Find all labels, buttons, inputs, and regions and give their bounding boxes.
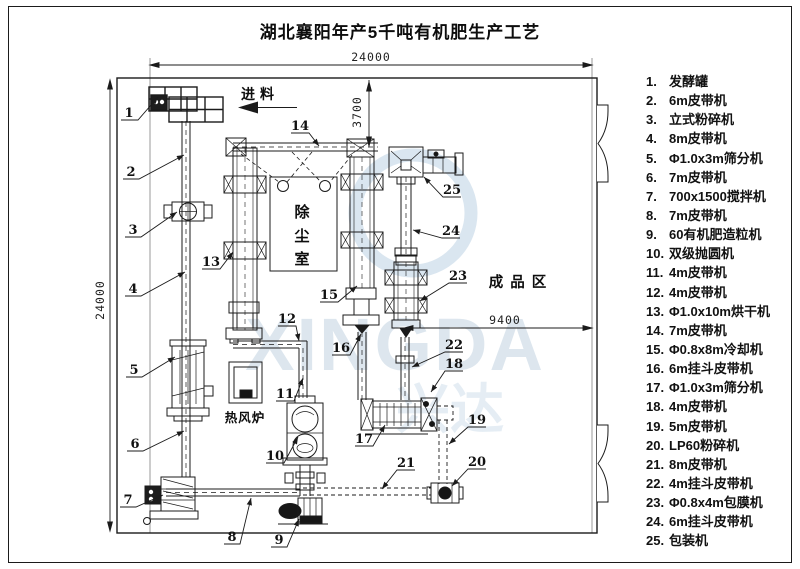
legend-item-number: 4. xyxy=(646,131,669,146)
legend-item-label: 4m皮带机 xyxy=(669,282,727,301)
feed-arrow: 进料 xyxy=(238,86,297,114)
legend-item-label: 6m皮带机 xyxy=(669,90,727,109)
legend-item-number: 19. xyxy=(646,419,669,434)
legend-item-number: 2. xyxy=(646,93,669,108)
legend-item: 10.双级抛圆机 xyxy=(646,243,788,262)
dust-room: 除 尘 室 xyxy=(241,152,352,271)
callout-24: 24 xyxy=(442,224,460,239)
legend-item-label: Φ1.0x3m筛分机 xyxy=(669,377,763,396)
dust-room-char-1: 除 xyxy=(294,203,310,221)
legend-item-number: 11. xyxy=(646,265,669,280)
callout-13: 13 xyxy=(202,255,220,270)
legend-item: 12.4m皮带机 xyxy=(646,282,788,301)
legend-item: 7.700x1500搅拌机 xyxy=(646,186,788,205)
legend-item-label: 双级抛圆机 xyxy=(669,243,734,262)
legend-item-label: 发酵罐 xyxy=(669,71,708,90)
callout-23: 23 xyxy=(449,269,467,284)
rounding-machine-10 xyxy=(283,396,327,496)
belt-left-vertical xyxy=(182,121,190,477)
feed-label: 进料 xyxy=(241,86,279,102)
dim-top: 24000 xyxy=(351,50,391,64)
callout-19: 19 xyxy=(468,413,486,428)
legend-item-label: 4m皮带机 xyxy=(669,262,727,281)
belt-24 xyxy=(395,177,417,256)
legend-item: 24.6m挂斗皮带机 xyxy=(646,511,788,530)
legend-item-number: 22. xyxy=(646,476,669,491)
callout-9: 9 xyxy=(274,533,283,548)
legend-item-label: 包装机 xyxy=(669,530,708,549)
legend-item: 16.6m挂斗皮带机 xyxy=(646,358,788,377)
legend-list: 1.发酵罐2.6m皮带机3.立式粉碎机4.8m皮带机5.Φ1.0x3m筛分机6.… xyxy=(646,71,788,550)
furnace-label: 热风炉 xyxy=(225,410,266,425)
callout-14: 14 xyxy=(291,119,309,134)
legend-item-label: 7m皮带机 xyxy=(669,320,727,339)
belt-14 xyxy=(226,138,378,156)
legend-item: 4.8m皮带机 xyxy=(646,128,788,147)
legend-item-label: 8m皮带机 xyxy=(669,128,727,147)
callout-5: 5 xyxy=(129,363,138,378)
mixer-motor xyxy=(145,486,161,504)
legend-item: 19.5m皮带机 xyxy=(646,416,788,435)
legend-item-label: 8m皮带机 xyxy=(669,454,727,473)
callout-20: 20 xyxy=(468,455,486,470)
legend-item-number: 17. xyxy=(646,380,669,395)
legend-item: 11.4m皮带机 xyxy=(646,262,788,281)
legend-item: 5.Φ1.0x3m筛分机 xyxy=(646,148,788,167)
legend-item-number: 6. xyxy=(646,170,669,185)
legend-item-label: 4m皮带机 xyxy=(669,396,727,415)
legend-item-number: 9. xyxy=(646,227,669,242)
drawing-sheet: 湖北襄阳年产5千吨有机肥生产工艺 XINGDA 兴达 240 xyxy=(0,0,800,569)
dim-3700: 3700 xyxy=(350,96,364,128)
legend-item-label: 5m皮带机 xyxy=(669,416,727,435)
watermark-ring xyxy=(355,155,471,271)
legend-item: 1.发酵罐 xyxy=(646,71,788,90)
finished-area-label: 成品区 xyxy=(489,273,554,291)
legend-item-label: 60有机肥造粒机 xyxy=(669,224,761,243)
legend-item-number: 25. xyxy=(646,533,669,548)
legend-item-number: 16. xyxy=(646,361,669,376)
callout-3: 3 xyxy=(128,223,137,238)
vertical-crusher xyxy=(164,202,212,221)
callout-6: 6 xyxy=(130,437,139,452)
legend-item-label: 6m挂斗皮带机 xyxy=(669,511,753,530)
legend-item: 20.LP60粉碎机 xyxy=(646,435,788,454)
legend-item-number: 24. xyxy=(646,514,669,529)
legend-item-number: 7. xyxy=(646,189,669,204)
callout-25: 25 xyxy=(443,183,461,198)
legend-item-number: 5. xyxy=(646,151,669,166)
legend-item-number: 15. xyxy=(646,342,669,357)
door-bottom-right xyxy=(597,425,608,502)
callout-11: 11 xyxy=(276,387,294,402)
legend-item: 25.包装机 xyxy=(646,530,788,549)
legend-item: 21.8m皮带机 xyxy=(646,454,788,473)
legend-item: 8.7m皮带机 xyxy=(646,205,788,224)
callout-2: 2 xyxy=(126,165,135,180)
legend-item-label: Φ0.8x8m冷却机 xyxy=(669,339,763,358)
legend-item-label: Φ0.8x4m包膜机 xyxy=(669,492,763,511)
callout-16: 16 xyxy=(332,341,350,356)
legend-item: 3.立式粉碎机 xyxy=(646,109,788,128)
legend-item-label: 700x1500搅拌机 xyxy=(669,186,766,205)
crusher-20 xyxy=(427,483,463,503)
legend-item-label: Φ1.0x3m筛分机 xyxy=(669,148,763,167)
legend-item: 2.6m皮带机 xyxy=(646,90,788,109)
dim-9400: 9400 xyxy=(489,313,521,327)
callout-15: 15 xyxy=(320,288,338,303)
callout-1: 1 xyxy=(124,106,133,121)
granulator-9 xyxy=(278,498,328,524)
legend-item: 18.4m皮带机 xyxy=(646,396,788,415)
legend-item-number: 10. xyxy=(646,246,669,261)
legend-item-number: 20. xyxy=(646,438,669,453)
legend-item: 17.Φ1.0x3m筛分机 xyxy=(646,377,788,396)
legend-item: 23.Φ0.8x4m包膜机 xyxy=(646,492,788,511)
dim-left: 24000 xyxy=(93,280,107,320)
legend-item: 14.7m皮带机 xyxy=(646,320,788,339)
legend-item-label: 6m挂斗皮带机 xyxy=(669,358,753,377)
legend-item: 9.60有机肥造粒机 xyxy=(646,224,788,243)
callout-12: 12 xyxy=(278,312,296,327)
feed-arrowhead xyxy=(238,102,258,114)
fermentation-tank xyxy=(149,87,223,122)
mixer-7 xyxy=(144,477,199,525)
legend-item: 22.4m挂斗皮带机 xyxy=(646,473,788,492)
legend-item: 13.Φ1.0x10m烘干机 xyxy=(646,301,788,320)
watermark-cjk-text: 兴达 xyxy=(396,380,504,440)
legend-item: 6.7m皮带机 xyxy=(646,167,788,186)
construction-lines xyxy=(150,58,592,533)
legend-item-number: 18. xyxy=(646,399,669,414)
dust-room-char-3: 室 xyxy=(294,250,309,268)
legend-item-number: 1. xyxy=(646,74,669,89)
legend-item-number: 23. xyxy=(646,495,669,510)
callout-7: 7 xyxy=(123,493,132,508)
legend-item-number: 13. xyxy=(646,304,669,319)
legend-item-number: 3. xyxy=(646,112,669,127)
door-top-right xyxy=(597,105,608,182)
legend-item-number: 21. xyxy=(646,457,669,472)
callout-18: 18 xyxy=(445,357,463,372)
legend-item-number: 14. xyxy=(646,323,669,338)
legend-item-label: Φ1.0x10m烘干机 xyxy=(669,301,770,320)
legend-item: 15.Φ0.8x8m冷却机 xyxy=(646,339,788,358)
callout-22: 22 xyxy=(445,338,463,353)
legend-item-label: 立式粉碎机 xyxy=(669,109,734,128)
callout-21: 21 xyxy=(397,456,415,471)
legend-item-label: 7m皮带机 xyxy=(669,205,727,224)
legend-item-label: 7m皮带机 xyxy=(669,167,727,186)
legend-item-label: 4m挂斗皮带机 xyxy=(669,473,753,492)
callout-10: 10 xyxy=(266,449,284,464)
callout-17: 17 xyxy=(355,432,373,447)
callout-8: 8 xyxy=(227,530,236,545)
callout-4: 4 xyxy=(128,282,137,297)
legend-item-number: 12. xyxy=(646,285,669,300)
dust-room-char-2: 尘 xyxy=(294,228,309,245)
belt-8 xyxy=(166,489,300,496)
legend-item-label: LP60粉碎机 xyxy=(669,435,739,454)
legend-item-number: 8. xyxy=(646,208,669,223)
